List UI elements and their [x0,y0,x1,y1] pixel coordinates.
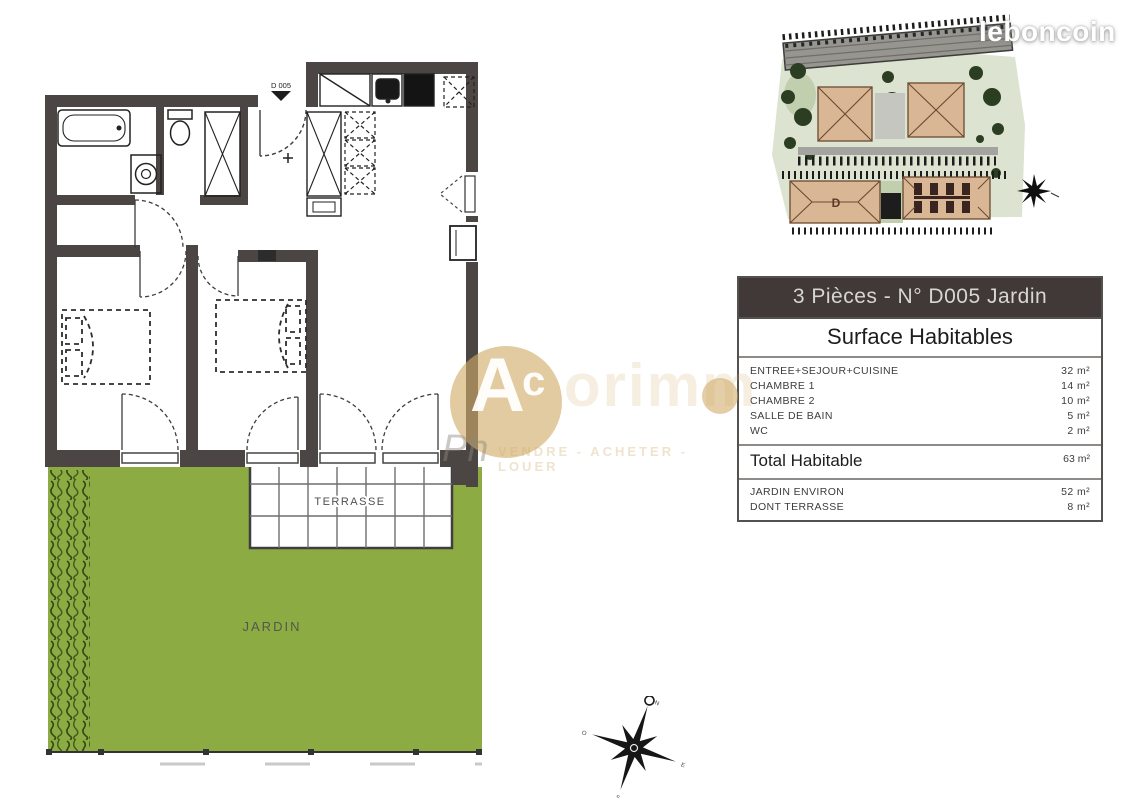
table-row: ENTREE+SEJOUR+CUISINE 32 m² [739,363,1101,378]
table-row: JARDIN ENVIRON 52 m² [739,484,1101,499]
garden-door-sills [122,453,438,463]
row-value: 2 m² [1067,425,1090,437]
row-value: 8 m² [1067,501,1090,513]
terrace-label: TERRASSE [314,496,385,508]
table-row: SALLE DE BAIN 5 m² [739,408,1101,423]
kitchen-hob [404,74,434,106]
table-row: WC 2 m² [739,423,1101,438]
row-value: 5 m² [1067,410,1090,422]
row-label: ENTREE+SEJOUR+CUISINE [750,365,898,377]
building-d-label: D [832,196,841,210]
table-title: 3 Pièces - N° D005 Jardin [739,278,1101,319]
table-total-row: Total Habitable 63 m² [739,446,1101,480]
total-value: 63 m² [1063,451,1090,465]
row-value: 10 m² [1061,395,1090,407]
row-value: 52 m² [1061,486,1090,498]
row-label: SALLE DE BAIN [750,410,833,422]
building-e [903,177,990,219]
row-label: CHAMBRE 2 [750,395,815,407]
entrance-label: D 005 [271,81,291,90]
table-row: CHAMBRE 2 10 m² [739,393,1101,408]
compass-west: O [581,730,588,737]
hedge [50,470,90,751]
building-d: D [790,181,880,223]
table-row: CHAMBRE 1 14 m² [739,378,1101,393]
row-label: DONT TERRASSE [750,501,844,513]
compass-south: S [615,795,621,798]
page: JARDIN TERRASSE [0,0,1124,800]
table-row: DONT TERRASSE 8 m² [739,499,1101,514]
surface-table: 3 Pièces - N° D005 Jardin Surface Habita… [737,276,1103,522]
row-label: WC [750,425,768,437]
compass-east: E [680,762,686,769]
leboncoin-logo: leboncoin [979,16,1116,48]
compass-north: N [654,700,660,707]
row-value: 32 m² [1061,365,1090,377]
compass-rose-icon: O E S N [570,696,702,798]
site-compass-icon [1017,174,1059,208]
row-label: JARDIN ENVIRON [750,486,844,498]
total-label: Total Habitable [750,451,862,471]
row-value: 14 m² [1061,380,1090,392]
row-label: CHAMBRE 1 [750,380,815,392]
table-extras: JARDIN ENVIRON 52 m² DONT TERRASSE 8 m² [739,480,1101,520]
garden-label: JARDIN [243,619,302,634]
surface-rows: ENTREE+SEJOUR+CUISINE 32 m² CHAMBRE 1 14… [739,358,1101,446]
table-subtitle: Surface Habitables [739,319,1101,358]
